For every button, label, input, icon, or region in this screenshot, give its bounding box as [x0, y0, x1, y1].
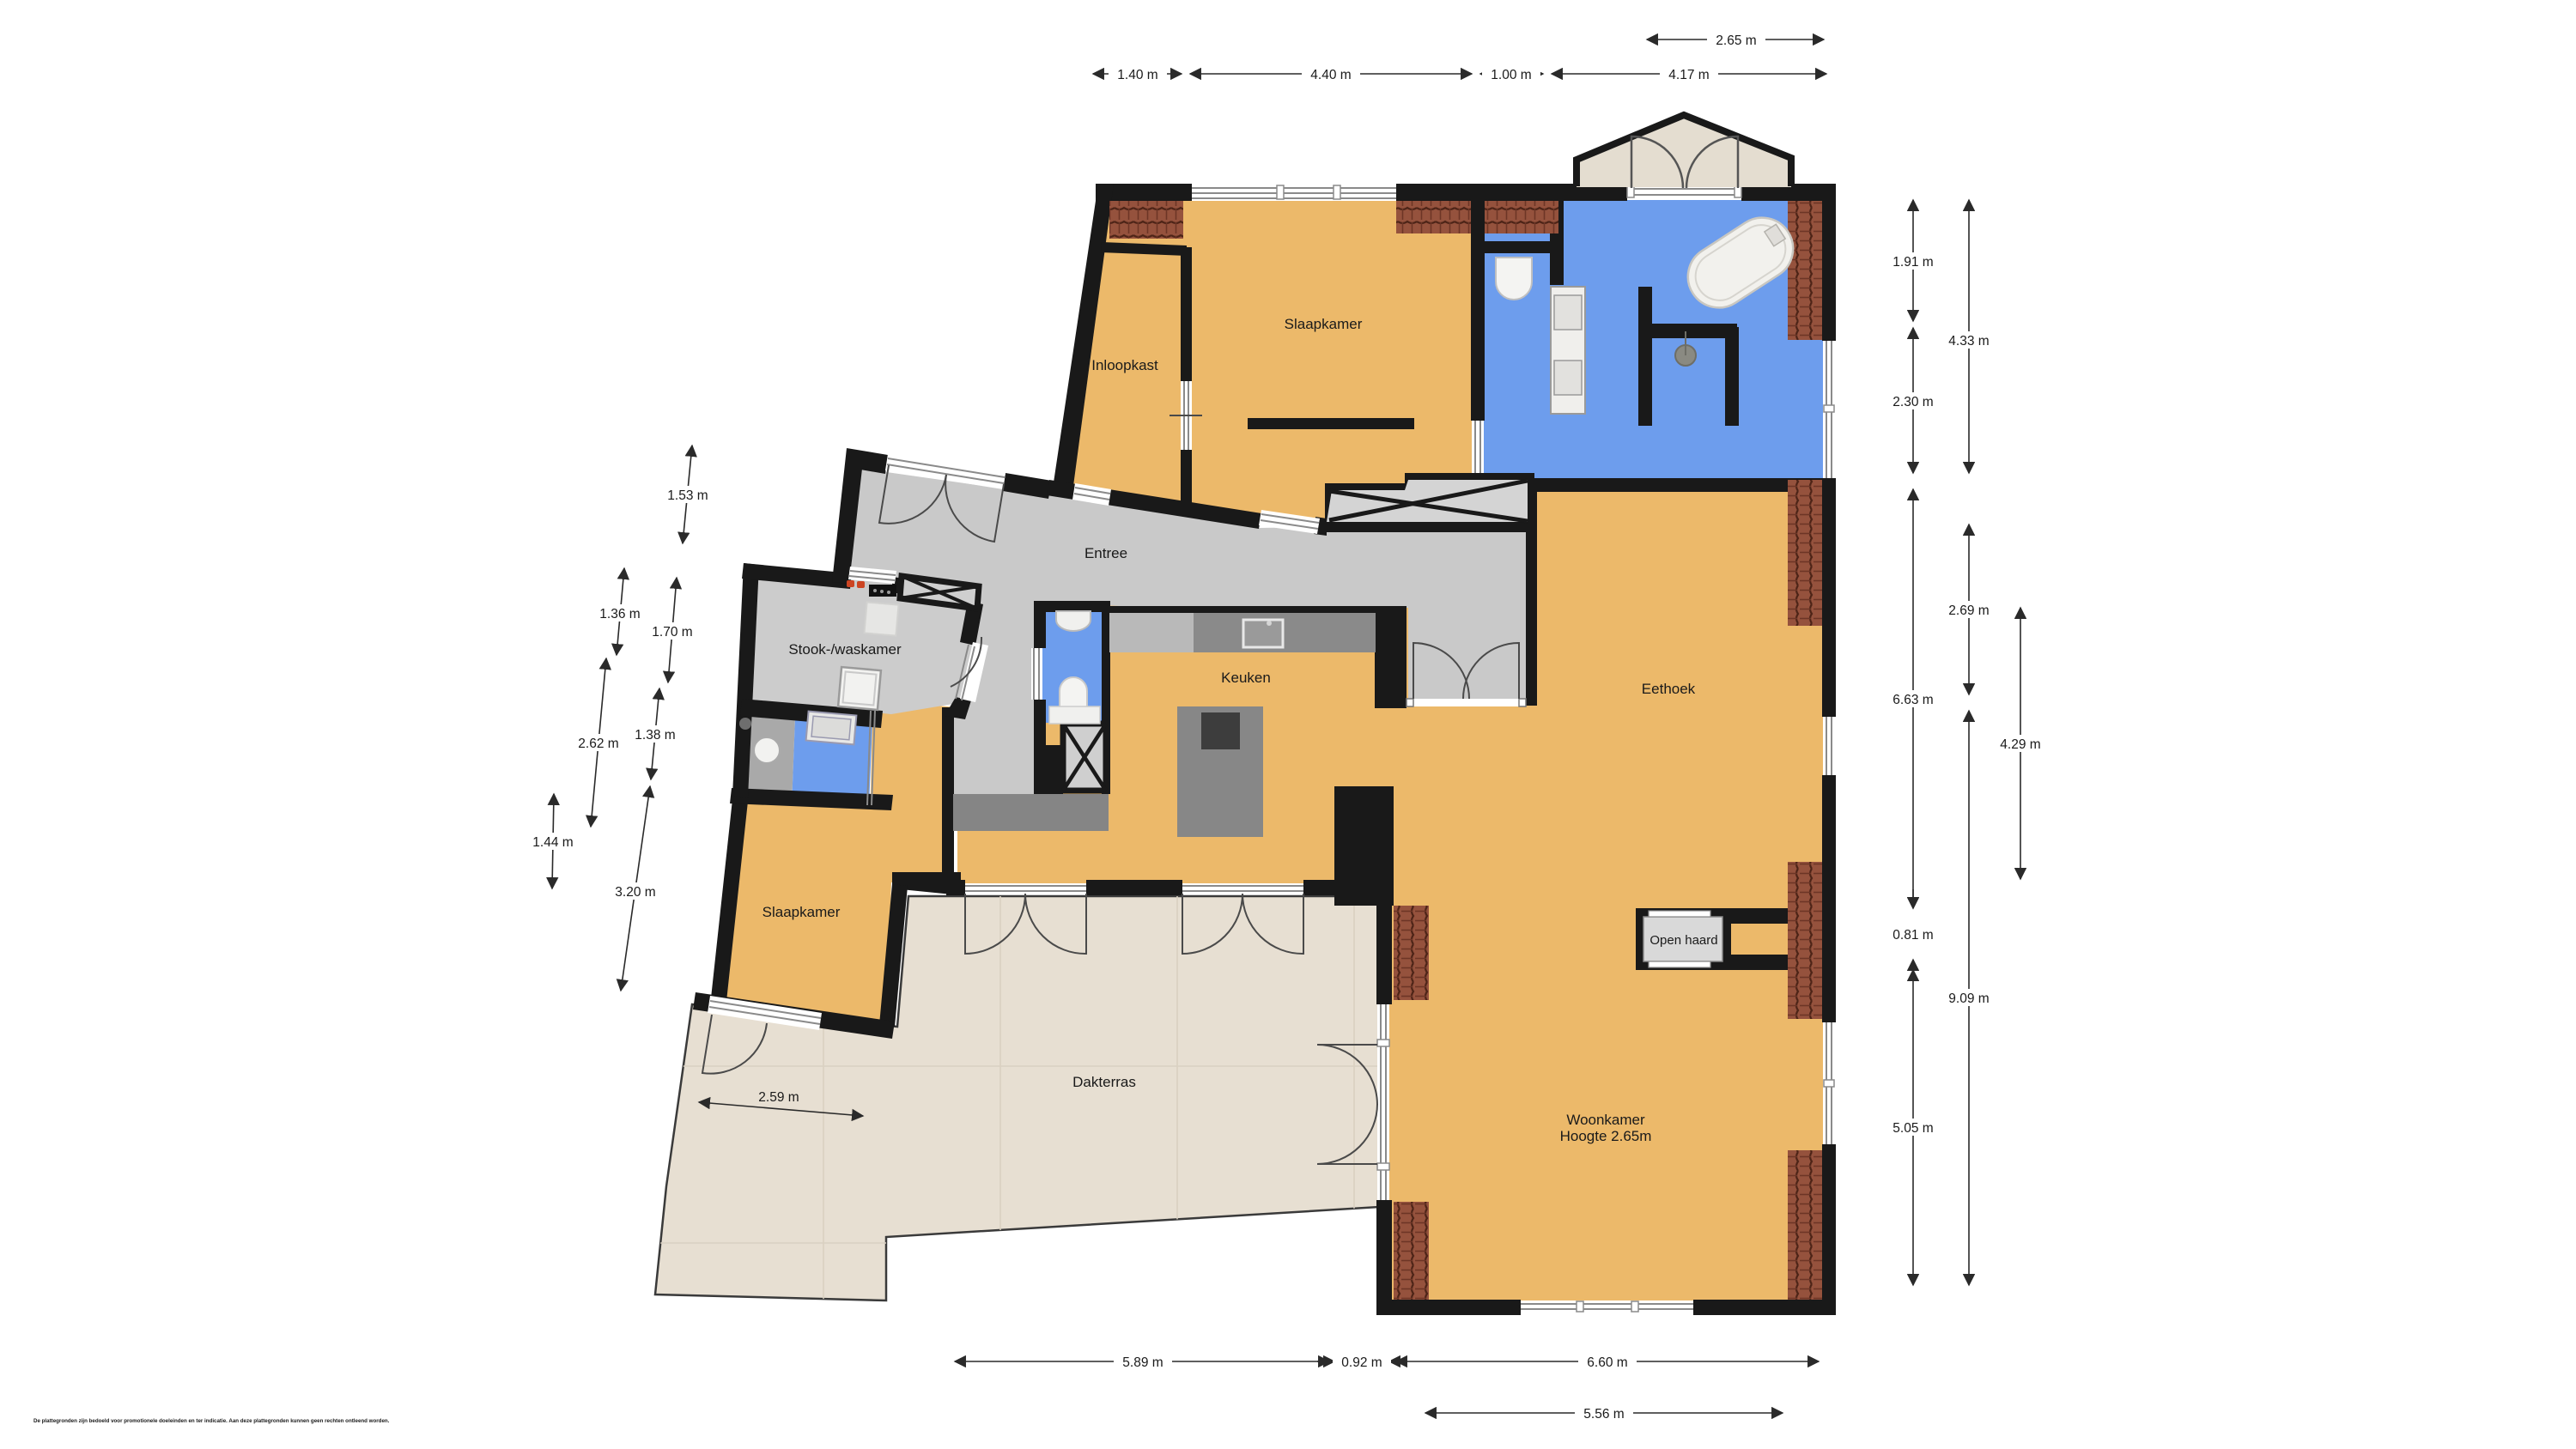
svg-text:5.05 m: 5.05 m [1893, 1121, 1933, 1136]
svg-text:Dakterras: Dakterras [1072, 1074, 1136, 1090]
svg-text:9.09 m: 9.09 m [1948, 991, 1989, 1006]
svg-text:Keuken: Keuken [1221, 670, 1271, 686]
svg-text:Entree: Entree [1084, 545, 1127, 561]
svg-text:0.81 m: 0.81 m [1893, 928, 1933, 943]
svg-text:De plattegronden zijn bedoeld: De plattegronden zijn bedoeld voor promo… [33, 1418, 390, 1424]
svg-text:6.60 m: 6.60 m [1587, 1355, 1627, 1370]
svg-text:2.59 m: 2.59 m [758, 1090, 799, 1105]
svg-text:Slaapkamer: Slaapkamer [762, 904, 841, 920]
svg-text:4.17 m: 4.17 m [1668, 68, 1709, 82]
svg-text:Inloopkast: Inloopkast [1091, 357, 1158, 373]
svg-text:Woonkamer: Woonkamer [1566, 1112, 1645, 1128]
svg-text:Hoogte 2.65m: Hoogte 2.65m [1560, 1128, 1652, 1144]
svg-text:5.56 m: 5.56 m [1583, 1407, 1624, 1422]
svg-text:1.44 m: 1.44 m [532, 835, 573, 850]
svg-text:1.36 m: 1.36 m [599, 607, 640, 621]
svg-text:3.20 m: 3.20 m [615, 885, 655, 900]
svg-text:1.53 m: 1.53 m [667, 488, 708, 503]
svg-text:4.33 m: 4.33 m [1948, 334, 1989, 349]
svg-text:2.30 m: 2.30 m [1893, 395, 1933, 409]
svg-text:Eethoek: Eethoek [1642, 681, 1696, 697]
svg-text:2.62 m: 2.62 m [578, 737, 618, 751]
svg-text:1.40 m: 1.40 m [1117, 68, 1157, 82]
svg-text:6.63 m: 6.63 m [1893, 693, 1933, 707]
svg-text:1.70 m: 1.70 m [652, 625, 692, 640]
svg-text:0.92 m: 0.92 m [1341, 1355, 1382, 1370]
svg-text:2.65 m: 2.65 m [1716, 33, 1756, 48]
svg-text:Stook-/waskamer: Stook-/waskamer [788, 641, 902, 658]
svg-text:5.89 m: 5.89 m [1122, 1355, 1163, 1370]
svg-text:Open haard: Open haard [1649, 933, 1717, 948]
svg-text:2.69 m: 2.69 m [1948, 603, 1989, 618]
svg-text:4.29 m: 4.29 m [2000, 737, 2040, 752]
svg-text:1.00 m: 1.00 m [1491, 68, 1531, 82]
svg-text:4.40 m: 4.40 m [1310, 68, 1351, 82]
svg-text:Slaapkamer: Slaapkamer [1285, 316, 1363, 332]
svg-text:1.38 m: 1.38 m [635, 728, 675, 743]
svg-text:1.91 m: 1.91 m [1893, 255, 1933, 270]
